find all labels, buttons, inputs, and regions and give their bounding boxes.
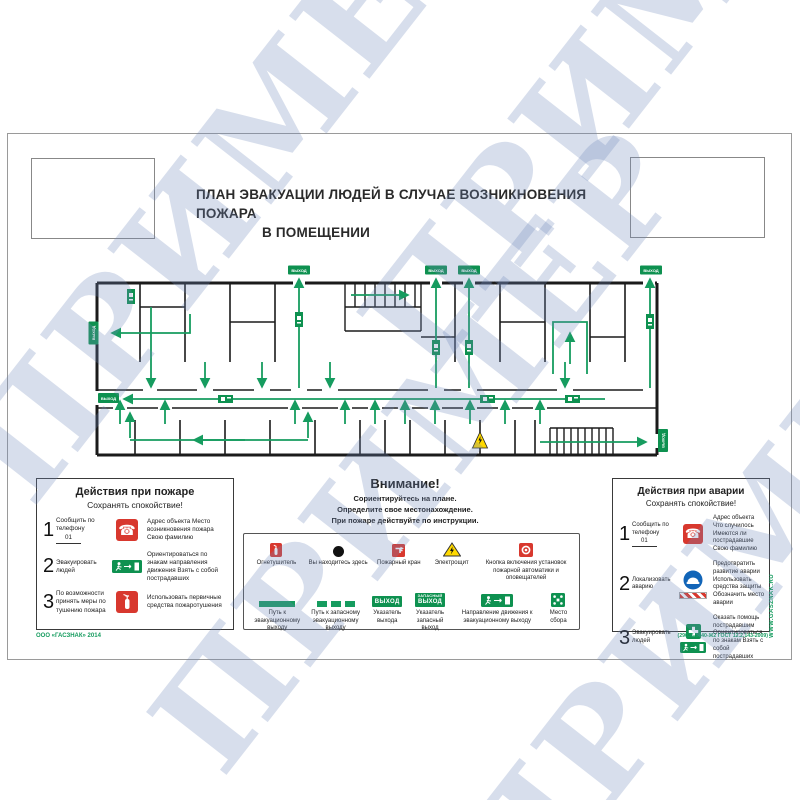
legend-item-fire-alarm-button: Кнопка включения установок пожарной авто…	[479, 541, 573, 583]
step-number: 1	[43, 519, 56, 542]
legend-row-routes: Путь к эвакуационному выходу Путь к запа…	[244, 589, 579, 633]
legend-item-main-route: Путь к эвакуационному выходу	[250, 591, 304, 633]
accident-panel-title: Действия при аварии	[613, 486, 769, 497]
evacuation-exit-icon	[110, 560, 144, 573]
legend-item-direction-sign: Направление движения к эвакуационному вы…	[452, 591, 542, 625]
step-action-text: Сообщить по телефону	[632, 522, 669, 536]
legend-label: Указатель запасный выход	[408, 610, 453, 633]
phone-icon: ☎	[676, 524, 710, 544]
step-details: Ориентироваться по знакам направления дв…	[144, 551, 229, 584]
step-number: 2	[43, 555, 56, 578]
legend-item-electrical-panel: Электрощит	[424, 541, 479, 568]
legend-item-assembly-point: Место сбора	[542, 591, 575, 625]
barrier-tape-icon	[679, 592, 707, 599]
step-details: Адрес объекта Что случилось Имеются ли п…	[710, 515, 765, 554]
fire-alarm-button-icon	[519, 541, 533, 557]
exit-sign-label: ВЫХОД	[662, 433, 666, 448]
legend-item-you-are-here: Вы находитесь здесь	[303, 541, 373, 568]
step-details: Предотвратить развитие аварии Использова…	[710, 561, 765, 608]
step-number: 2	[619, 573, 632, 596]
exit-sign-icon: ВЫХОД	[372, 591, 402, 607]
fire-step-2: 2 Эвакуировать людей Ориентироваться по …	[43, 551, 229, 584]
fire-actions-panel: Действия при пожаре Сохранять спокойстви…	[36, 478, 234, 630]
fire-step-3: 3 По возможности принять меры по тушению…	[43, 590, 229, 615]
phone-number: 01	[632, 538, 657, 547]
step-action: Сообщить по телефону 01	[632, 522, 676, 547]
exit-sign-text: ВЫХОД	[372, 596, 402, 607]
accident-step-1: 1 Сообщить по телефону 01 ☎ Адрес объект…	[619, 515, 765, 554]
accident-step-2: 2 Локализовать аварию Предотвратить разв…	[619, 561, 765, 608]
fire-extinguisher-icon	[110, 591, 144, 613]
legend-label: Вы находитесь здесь	[309, 560, 368, 568]
legend-label: Направление движения к эвакуационному вы…	[452, 610, 542, 625]
floor-plan: ВЫХОД ВЫХОД ВЫХОД ВЫХОД ВЫХОД ВЫХОД ВЫХО…	[45, 262, 680, 462]
direction-sign-icon	[481, 591, 513, 607]
legend-box: Огнетушитель Вы находитесь здесь Пожарны…	[243, 533, 580, 630]
empty-info-box-right	[630, 157, 765, 238]
legend-row-symbols: Огнетушитель Вы находитесь здесь Пожарны…	[244, 534, 579, 589]
legend-label: Пожарный кран	[377, 560, 421, 568]
electrical-panel-icon	[443, 541, 461, 557]
gasznak-website-text: WWW.GASZNAK.RU	[769, 546, 775, 638]
step-details: Использовать первичные средства пожароту…	[144, 594, 229, 610]
title-line-1: ПЛАН ЭВАКУАЦИИ ЛЮДЕЙ В СЛУЧАЕ ВОЗНИКНОВЕ…	[196, 186, 616, 224]
assembly-point-icon	[551, 591, 565, 607]
step-action-text: Сообщить по телефону	[56, 517, 95, 532]
exit-sign-label: ВЫХОД	[101, 396, 116, 401]
evacuation-exit-icon	[680, 642, 706, 653]
legend-item-emergency-exit-sign: ЗАПАСНЫЙ ВЫХОД Указатель запасный выход	[408, 591, 453, 633]
step-action: Эвакуировать людей	[56, 559, 110, 575]
attention-line: Определите свое местонахождение.	[250, 505, 560, 516]
fire-panel-title: Действия при пожаре	[37, 486, 233, 498]
exit-sign-label: ВЫХОД	[92, 325, 96, 340]
gost-footer: (29035-1440-Ж2 ГОСТ 12.2.143-2009)	[600, 633, 768, 639]
legend-label: Электрощит	[435, 560, 469, 568]
legend-label: Огнетушитель	[257, 560, 297, 568]
secondary-route-icon	[317, 591, 355, 607]
attention-block: Внимание! Сориентируйтесь на плане. Опре…	[250, 476, 560, 527]
fire-extinguisher-icon	[270, 541, 282, 557]
phone-number: 01	[56, 534, 81, 543]
title-line-2: В ПОМЕЩЕНИИ	[262, 224, 616, 243]
exit-marker-icons	[127, 289, 654, 403]
attention-line: Сориентируйтесь на плане.	[250, 494, 560, 505]
accident-actions-panel: Действия при аварии Сохранять спокойстви…	[612, 478, 770, 632]
legend-item-secondary-route: Путь к запасному эвакуационному выходу	[304, 591, 366, 633]
step-details: Адрес объекта Место возникновения пожара…	[144, 518, 229, 543]
legend-label: Кнопка включения установок пожарной авто…	[479, 560, 573, 583]
exit-sign-label: ВЫХОД	[291, 268, 306, 273]
poster-title: ПЛАН ЭВАКУАЦИИ ЛЮДЕЙ В СЛУЧАЕ ВОЗНИКНОВЕ…	[196, 186, 616, 243]
step-action: Локализовать аварию	[632, 577, 676, 593]
step-number: 1	[619, 523, 632, 546]
legend-item-fire-crane: Пожарный кран	[373, 541, 424, 568]
phone-icon: ☎	[110, 519, 144, 541]
exit-sign-label: ВЫХОД	[428, 268, 443, 273]
step-number: 3	[43, 591, 56, 614]
electrical-panel-icon	[473, 432, 488, 448]
legend-label: Путь к эвакуационному выходу	[250, 610, 304, 633]
main-route-icon	[259, 591, 295, 607]
evacuation-plan-poster: ПРИМЕР ПРИМЕР ПРИМЕР ПРИМЕР ПЛАН ЭВАКУАЦ…	[0, 0, 800, 800]
attention-title: Внимание!	[250, 476, 560, 491]
legend-item-fire-extinguisher: Огнетушитель	[250, 541, 303, 568]
manufacturer-footer: ООО «ГАСЗНАК» 2014	[36, 633, 101, 639]
evacuation-routes	[113, 280, 650, 442]
protective-helmet-icon	[676, 570, 710, 599]
fire-panel-subtitle: Сохранять спокойствие!	[37, 500, 233, 510]
stairs-top	[345, 283, 421, 331]
plan-walls	[97, 283, 657, 455]
fire-crane-icon	[392, 541, 405, 557]
legend-label: Путь к запасному эвакуационному выходу	[304, 610, 366, 633]
empty-info-box-left	[31, 158, 155, 239]
step-action: По возможности принять меры по тушению п…	[56, 590, 110, 615]
legend-label: Указатель выхода	[367, 610, 408, 625]
emergency-exit-sign-icon: ЗАПАСНЫЙ ВЫХОД	[415, 591, 445, 607]
exit-sign-label: ВЫХОД	[643, 268, 658, 273]
legend-label: Место сбора	[542, 610, 575, 625]
legend-item-exit-sign: ВЫХОД Указатель выхода	[367, 591, 408, 625]
attention-line: При пожаре действуйте по инструкции.	[250, 516, 560, 527]
you-are-here-icon	[333, 541, 344, 557]
fire-step-1: 1 Сообщить по телефону 01 ☎ Адрес объект…	[43, 517, 229, 544]
step-action: Сообщить по телефону 01	[56, 517, 110, 544]
emergency-exit-bottom-text: ВЫХОД	[418, 599, 442, 605]
accident-panel-subtitle: Сохранять спокойствие!	[613, 499, 769, 508]
plan-exit-signs: ВЫХОД ВЫХОД ВЫХОД ВЫХОД ВЫХОД ВЫХОД ВЫХО…	[89, 266, 669, 453]
exit-sign-label: ВЫХОД	[461, 268, 476, 273]
